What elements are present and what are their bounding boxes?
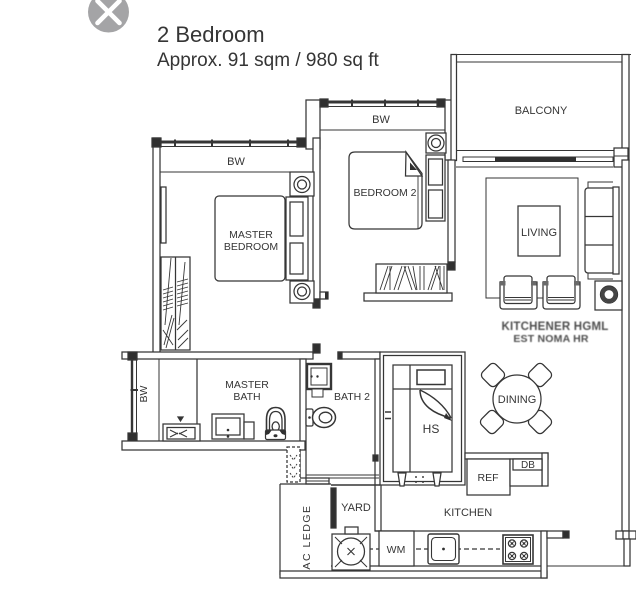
svg-text:KITCHENER HGML: KITCHENER HGML — [502, 321, 609, 333]
svg-text:LIVING: LIVING — [521, 227, 557, 239]
svg-text:MASTER: MASTER — [229, 229, 273, 241]
svg-text:EST NOMA HR: EST NOMA HR — [513, 333, 589, 345]
svg-text:KITCHEN: KITCHEN — [444, 507, 492, 519]
svg-text:BW: BW — [138, 385, 150, 402]
svg-text:Approx. 91 sqm / 980 sq ft: Approx. 91 sqm / 980 sq ft — [157, 50, 380, 71]
svg-text:BATH: BATH — [233, 391, 260, 403]
svg-text:BATH 2: BATH 2 — [334, 391, 370, 403]
svg-text:DINING: DINING — [498, 394, 537, 406]
svg-text:BEDROOM: BEDROOM — [224, 241, 278, 253]
svg-text:BEDROOM 2: BEDROOM 2 — [353, 187, 416, 199]
svg-text:YARD: YARD — [341, 502, 371, 514]
svg-text:WM: WM — [387, 544, 406, 556]
svg-text:HS: HS — [423, 422, 440, 436]
svg-text:MASTER: MASTER — [225, 379, 269, 391]
svg-text:2 Bedroom: 2 Bedroom — [157, 22, 265, 47]
svg-text:REF: REF — [478, 472, 499, 484]
svg-text:BALCONY: BALCONY — [515, 105, 568, 117]
svg-text:AC LEDGE: AC LEDGE — [301, 504, 313, 569]
svg-text:BW: BW — [372, 114, 390, 126]
svg-text:BW: BW — [227, 156, 245, 168]
svg-text:DB: DB — [521, 460, 535, 471]
